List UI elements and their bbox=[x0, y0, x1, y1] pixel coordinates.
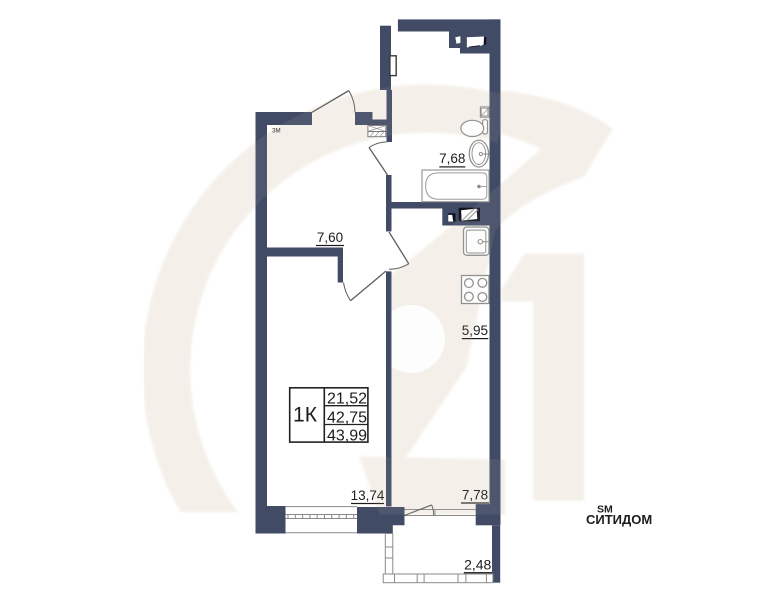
svg-text:7,68: 7,68 bbox=[439, 151, 465, 166]
svg-text:1К: 1К bbox=[293, 404, 318, 427]
svg-text:43,99: 43,99 bbox=[327, 428, 367, 445]
svg-text:21,52: 21,52 bbox=[327, 391, 367, 408]
svg-text:2,48: 2,48 bbox=[464, 557, 491, 573]
svg-text:42,75: 42,75 bbox=[327, 409, 367, 426]
svg-text:СИТИДОМ: СИТИДОМ bbox=[586, 512, 652, 527]
svg-text:7,60: 7,60 bbox=[317, 230, 343, 245]
